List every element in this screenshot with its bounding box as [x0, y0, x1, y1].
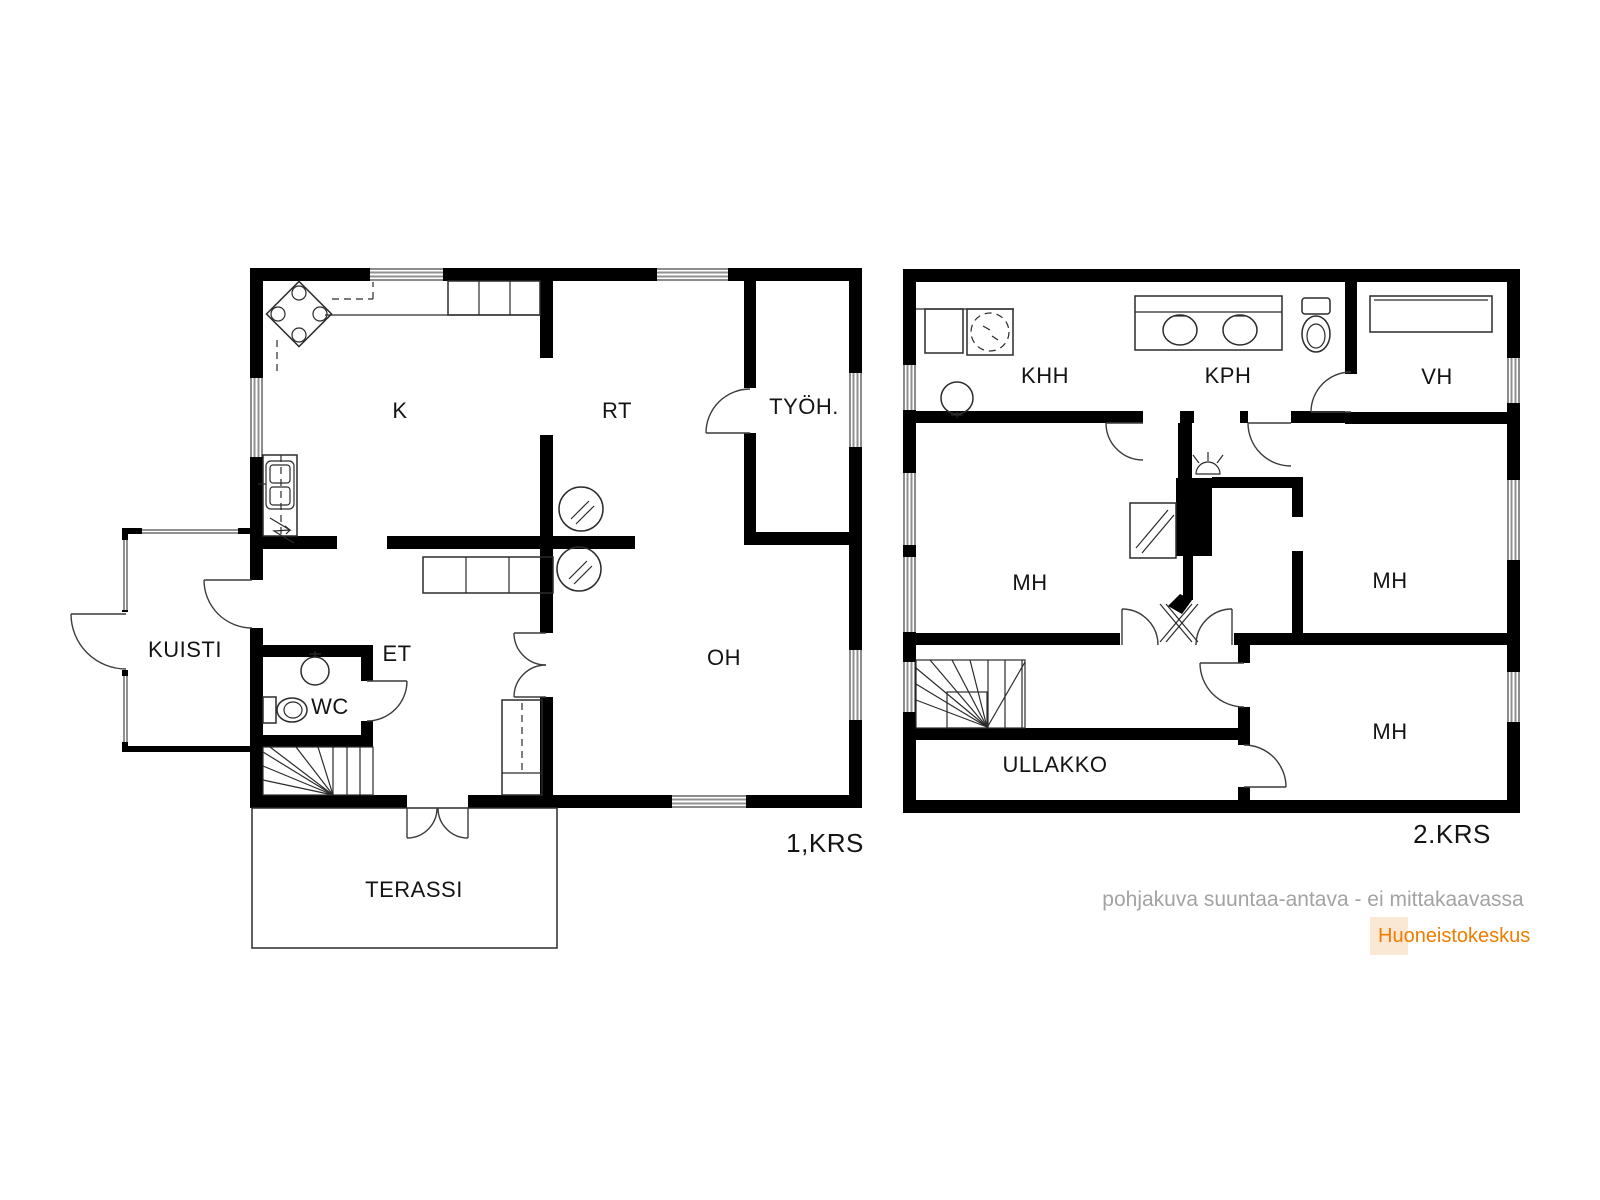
floorplan-page: K RT TYÖH. KUISTI ET WC OH TERASSI 1,KRS — [0, 0, 1600, 1200]
stairhall-door — [1200, 663, 1244, 707]
vh-door — [1311, 372, 1351, 412]
floor1-label: 1,KRS — [786, 828, 864, 858]
wc-door — [367, 681, 407, 721]
floor2-doors — [1106, 372, 1351, 787]
mh-right-door — [1248, 423, 1291, 466]
room-label-wc: WC — [311, 694, 349, 719]
room-label-ullakko: ULLAKKO — [1003, 752, 1108, 777]
hall-double-door — [1122, 609, 1232, 645]
room-label-tyoh: TYÖH. — [769, 394, 839, 419]
washing-machine-icon — [967, 309, 1013, 355]
upper-cabinets-icon — [448, 281, 540, 315]
wc-toilet-icon — [263, 697, 307, 723]
floor1-doors — [204, 389, 750, 838]
terassi-double-door — [407, 808, 468, 838]
room-label-et: ET — [382, 641, 411, 666]
kph-toilet-icon — [1302, 298, 1330, 352]
room-label-k: K — [392, 398, 407, 423]
footer: pohjakuva suuntaa-antava - ei mittakaava… — [1102, 888, 1530, 955]
et-wardrobe-icon — [502, 700, 542, 795]
room-label-mh-left: MH — [1012, 570, 1047, 595]
kuisti-to-et-door — [204, 580, 252, 628]
kuisti-entry-door — [71, 614, 126, 669]
stove-icon — [264, 276, 338, 350]
vh-shelf-icon — [1370, 296, 1492, 332]
et-cabinet-icon — [423, 557, 553, 593]
room-label-khh: KHH — [1021, 363, 1069, 388]
room-label-mh-right: MH — [1372, 568, 1407, 593]
mh-bottom-door — [1244, 745, 1286, 787]
room-label-kuisti: KUISTI — [148, 637, 222, 662]
room-label-oh: OH — [707, 645, 741, 670]
floorplan-canvas: K RT TYÖH. KUISTI ET WC OH TERASSI 1,KRS — [0, 0, 1600, 1200]
brand-logo-text: Huoneistokeskus — [1378, 925, 1530, 947]
disclaimer-text: pohjakuva suuntaa-antava - ei mittakaava… — [1102, 888, 1524, 911]
kuisti-windows — [122, 528, 238, 742]
glass-hatch-icon — [1130, 503, 1176, 558]
room-label-kph: KPH — [1205, 363, 1252, 388]
tyoh-door — [706, 389, 750, 433]
floor2-label: 2.KRS — [1413, 819, 1491, 849]
folding-door-icon — [1160, 594, 1198, 642]
et-oh-double-door — [514, 633, 546, 697]
stairs-floor1-icon — [263, 747, 373, 795]
stairs-floor2-icon — [916, 660, 1025, 728]
room-label-vh: VH — [1421, 364, 1453, 389]
kitchen-sink-icon — [258, 455, 297, 536]
et-fixtures — [423, 557, 553, 795]
room-label-mh-bottom: MH — [1372, 719, 1407, 744]
floor2-plan: KHH KPH VH MH MH MH ULLAKKO 2.KRS — [903, 269, 1520, 849]
khh-appliance-icon — [925, 309, 963, 353]
room-label-terassi: TERASSI — [365, 877, 463, 902]
kph-sink-counter-icon — [1135, 296, 1282, 350]
skylight-icon — [1193, 452, 1223, 474]
floor1-plan: K RT TYÖH. KUISTI ET WC OH TERASSI 1,KRS — [71, 268, 864, 948]
mh-left-door — [1106, 423, 1143, 460]
khh-fixtures — [916, 309, 1014, 418]
floor2-room-labels: KHH KPH VH MH MH MH ULLAKKO — [1003, 363, 1453, 777]
room-label-rt: RT — [602, 398, 632, 423]
floor1-walls — [250, 268, 862, 808]
